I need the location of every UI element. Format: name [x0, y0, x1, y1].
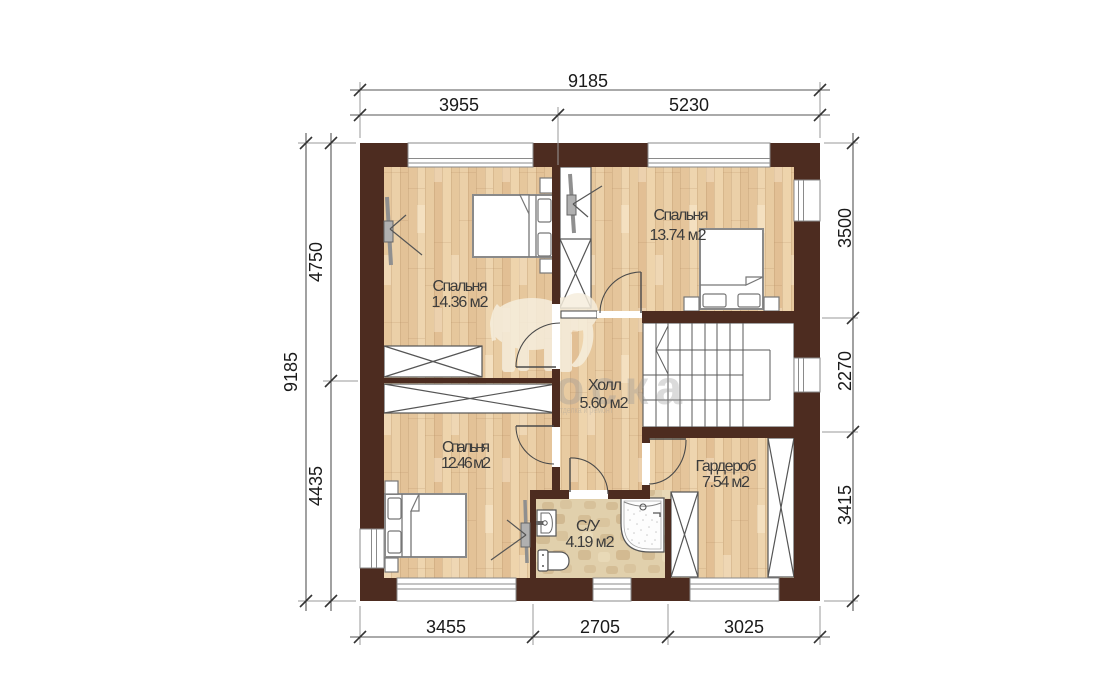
svg-text:9185: 9185: [281, 352, 301, 392]
svg-text:5230: 5230: [669, 95, 709, 115]
svg-text:Спальня: Спальня: [433, 278, 488, 295]
svg-text:3025: 3025: [724, 617, 764, 637]
svg-text:7.54 м2: 7.54 м2: [702, 474, 750, 491]
svg-text:2270: 2270: [835, 351, 855, 391]
svg-text:5.60 м2: 5.60 м2: [580, 395, 629, 412]
svg-text:3955: 3955: [439, 95, 479, 115]
svg-text:Спальня: Спальня: [654, 207, 709, 224]
svg-text:9185: 9185: [568, 71, 608, 91]
svg-text:14.36 м2: 14.36 м2: [432, 294, 489, 311]
svg-text:4435: 4435: [306, 466, 326, 506]
svg-text:4750: 4750: [306, 242, 326, 282]
svg-text:Холл: Холл: [588, 377, 622, 394]
svg-text:С/У: С/У: [576, 518, 601, 535]
svg-text:3455: 3455: [426, 617, 466, 637]
svg-text:4.19 м2: 4.19 м2: [566, 534, 615, 551]
svg-text:12.46 м2: 12.46 м2: [441, 455, 491, 472]
svg-text:2705: 2705: [580, 617, 620, 637]
svg-text:3415: 3415: [835, 485, 855, 525]
svg-text:Спальня: Спальня: [442, 439, 490, 456]
svg-text:Гардероб: Гардероб: [696, 458, 757, 475]
svg-text:13.74 м2: 13.74 м2: [650, 227, 707, 244]
svg-text:3500: 3500: [835, 208, 855, 248]
